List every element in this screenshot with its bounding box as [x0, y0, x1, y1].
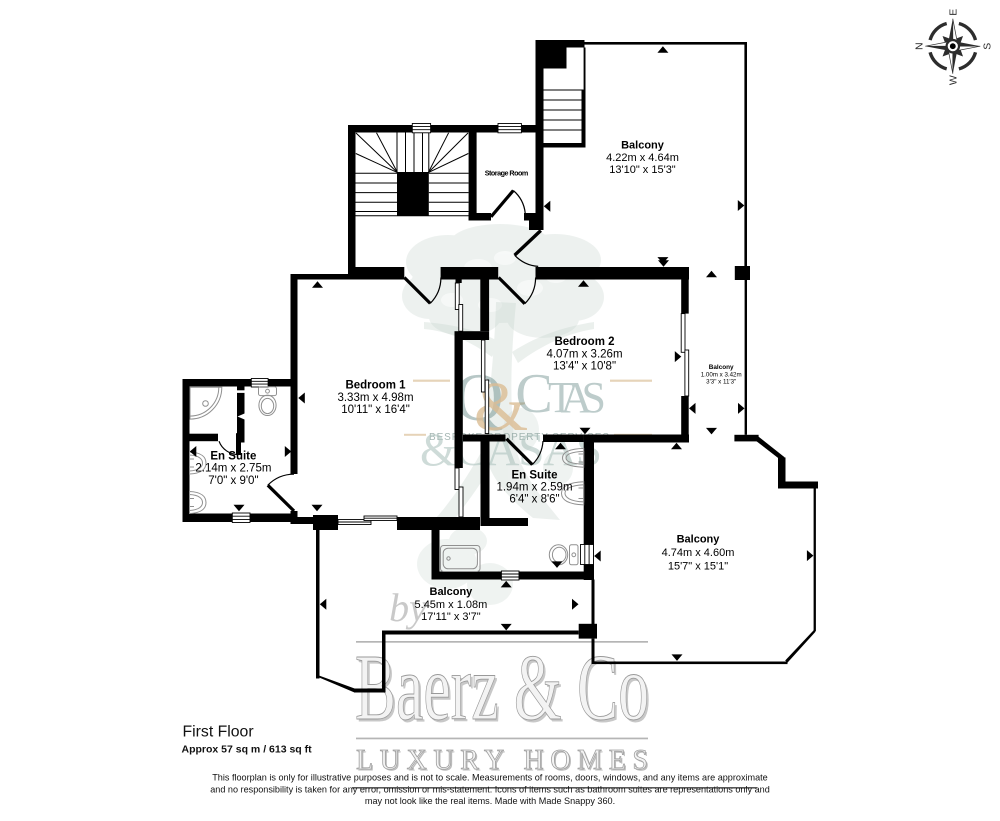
- svg-text:En Suite: En Suite: [210, 451, 256, 463]
- svg-text:17'11" x 3'7": 17'11" x 3'7": [421, 611, 481, 623]
- svg-text:Bedroom 2: Bedroom 2: [554, 336, 614, 348]
- svg-text:1.94m x 2.59m: 1.94m x 2.59m: [496, 482, 572, 494]
- svg-text:N: N: [913, 42, 925, 50]
- svg-text:Balcony: Balcony: [709, 364, 734, 371]
- svg-text:1.00m x 3.42m: 1.00m x 3.42m: [701, 371, 742, 378]
- svg-text:13'10" x 15'3": 13'10" x 15'3": [609, 164, 676, 176]
- svg-text:6'4" x 8'6": 6'4" x 8'6": [509, 493, 559, 505]
- svg-text:may not look like the real ite: may not look like the real items. Made w…: [365, 796, 615, 806]
- svg-text:S: S: [982, 43, 994, 50]
- svg-text:E: E: [948, 9, 960, 16]
- svg-text:Storage Room: Storage Room: [485, 168, 529, 177]
- svg-text:&CASAS: &CASAS: [420, 424, 602, 476]
- svg-text:First Floor: First Floor: [183, 724, 254, 741]
- svg-text:Balcony: Balcony: [677, 534, 721, 546]
- svg-text:15'7" x 15'1": 15'7" x 15'1": [668, 560, 728, 572]
- svg-text:Balcony: Balcony: [621, 140, 665, 152]
- svg-text:Baerz & Co: Baerz & Co: [355, 636, 649, 740]
- svg-text:This floorplan is only for ill: This floorplan is only for illustrative …: [212, 773, 767, 783]
- svg-text:Approx 57 sq m / 613 sq ft: Approx 57 sq m / 613 sq ft: [182, 744, 313, 756]
- svg-text:TAS: TAS: [548, 373, 606, 422]
- svg-text:3'3" x 11'3": 3'3" x 11'3": [706, 379, 736, 386]
- svg-text:W: W: [948, 75, 960, 85]
- svg-text:Bedroom 1: Bedroom 1: [345, 380, 406, 392]
- svg-text:4.74m x 4.60m: 4.74m x 4.60m: [662, 547, 735, 559]
- svg-text:2.14m x 2.75m: 2.14m x 2.75m: [195, 463, 271, 475]
- svg-text:and no responsibility is taken: and no responsibility is taken for any e…: [210, 784, 770, 794]
- svg-text:En Suite: En Suite: [511, 470, 557, 482]
- svg-text:4.22m x 4.64m: 4.22m x 4.64m: [606, 152, 679, 164]
- svg-text:7'0" x 9'0": 7'0" x 9'0": [208, 475, 258, 487]
- svg-text:5.45m x 1.08m: 5.45m x 1.08m: [415, 599, 488, 611]
- svg-text:10'11" x 16'4": 10'11" x 16'4": [341, 404, 410, 416]
- svg-text:4.07m x 3.26m: 4.07m x 3.26m: [546, 348, 622, 360]
- svg-text:13'4" x 10'8": 13'4" x 10'8": [553, 361, 616, 373]
- svg-text:Balcony: Balcony: [430, 586, 474, 598]
- svg-text:3.33m x 4.98m: 3.33m x 4.98m: [337, 392, 413, 404]
